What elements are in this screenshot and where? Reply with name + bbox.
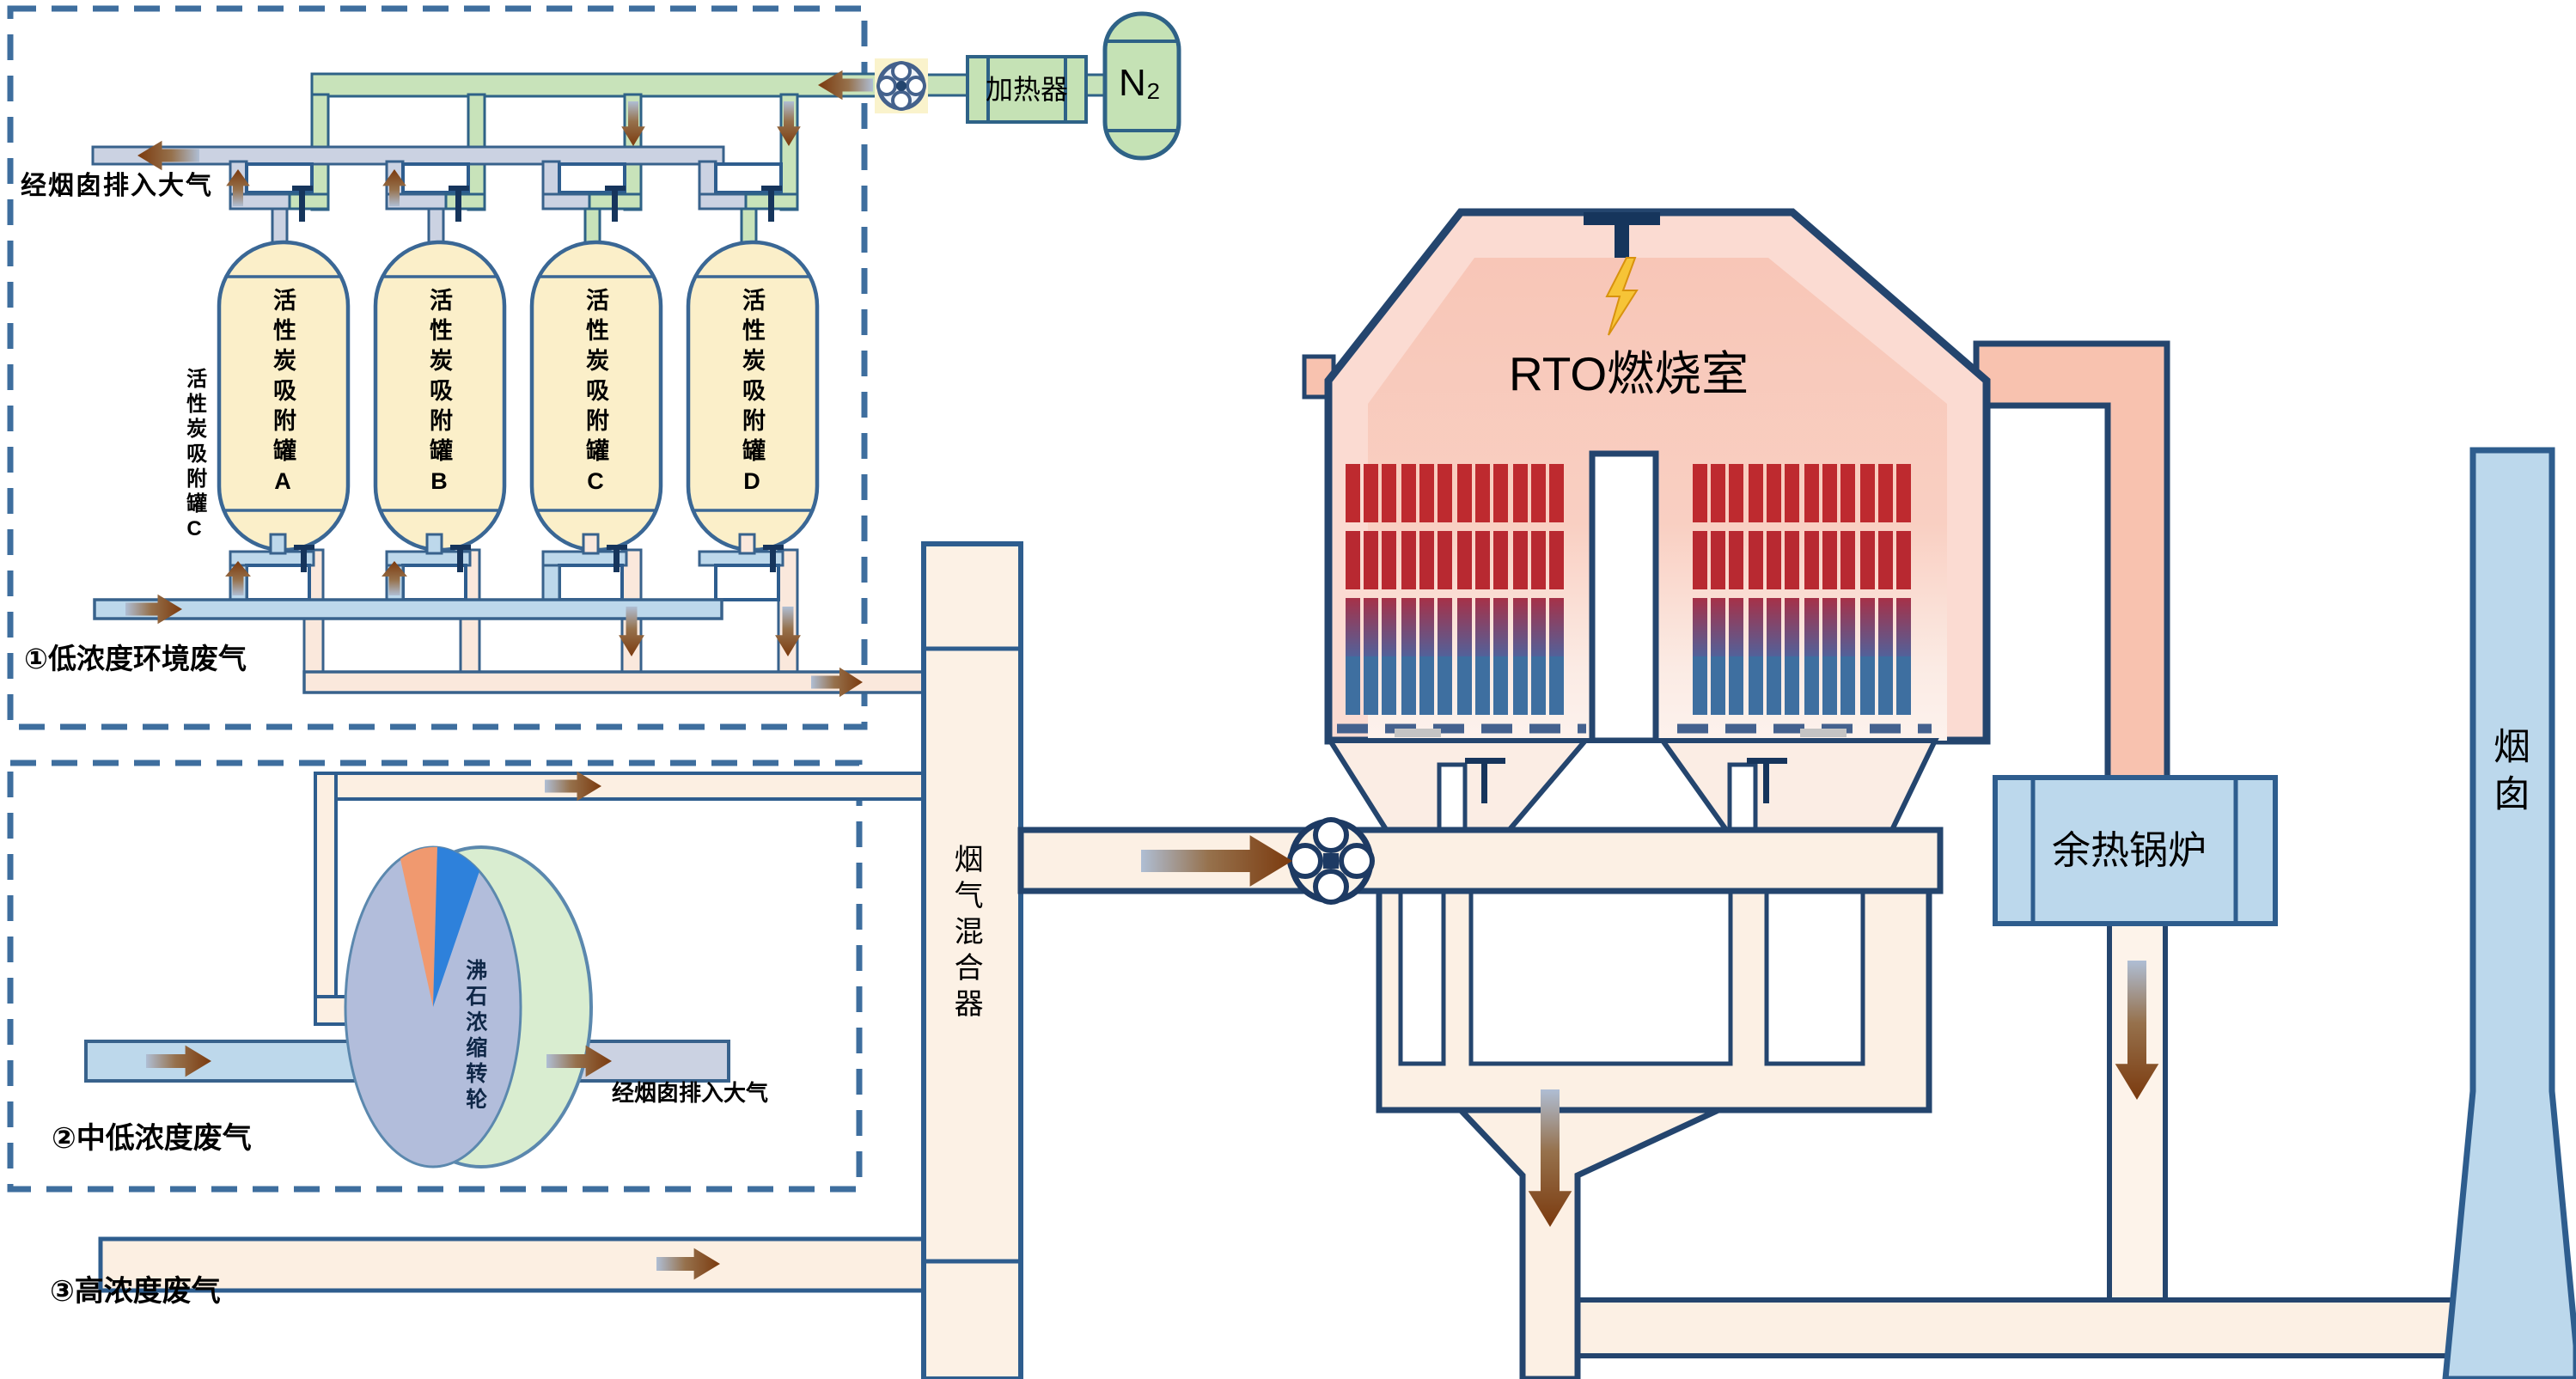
chimney [2445,450,2576,1379]
zone2-label: ②中低浓度废气 [52,1122,252,1156]
tank-d-label: 活性炭吸附罐D [738,288,765,501]
flow-arrow [137,141,199,171]
right-hopper-neck [1730,765,1755,832]
rto-lower-manifold [1021,820,1940,1379]
zone3-label: ③高浓度废气 [50,1275,221,1309]
tank-b-label: 活性炭吸附罐B [425,288,452,501]
high-conc-pipe [101,1239,924,1291]
stack-label: 烟囱 [2487,727,2529,821]
rto-hot-outlet-pipe [1976,344,2167,779]
wheel-label: 沸石浓缩转轮 [462,959,487,1114]
rto-inlet-fan-icon [1290,820,1372,902]
exhaust-to-stack-label-top: 经烟囱排入大气 [21,172,213,202]
tank-a-label: 活性炭吸附罐A [269,288,296,501]
n2-fan-icon [875,58,928,113]
mixer-label: 烟气混合器 [949,844,982,1024]
zone1-label: ①低浓度环境废气 [24,643,247,675]
side-tank-label: 活性炭吸附罐C [182,368,206,545]
wheel-exhaust-label: 经烟囱排入大气 [612,1081,768,1107]
n2-label: N₂ [1119,62,1161,106]
rto-label: RTO燃烧室 [1509,347,1749,401]
left-hopper-neck [1439,765,1465,832]
tank-c-label: 活性炭吸附罐C [582,288,608,501]
rto-center-channel [1592,454,1656,741]
boiler-label: 余热锅炉 [2052,828,2207,873]
zeolite-wheel-section [86,773,924,1167]
rto-chamber [1304,212,1987,833]
carbon-tanks [219,242,817,550]
heater-label: 加热器 [986,74,1068,106]
process-flow-diagram: 经烟囱排入大气 活性炭吸附罐C 活性炭吸附罐A 活性炭吸附罐B 活性炭吸附罐C … [0,0,2576,1379]
stack-bottom-manifold [1523,1300,2500,1356]
